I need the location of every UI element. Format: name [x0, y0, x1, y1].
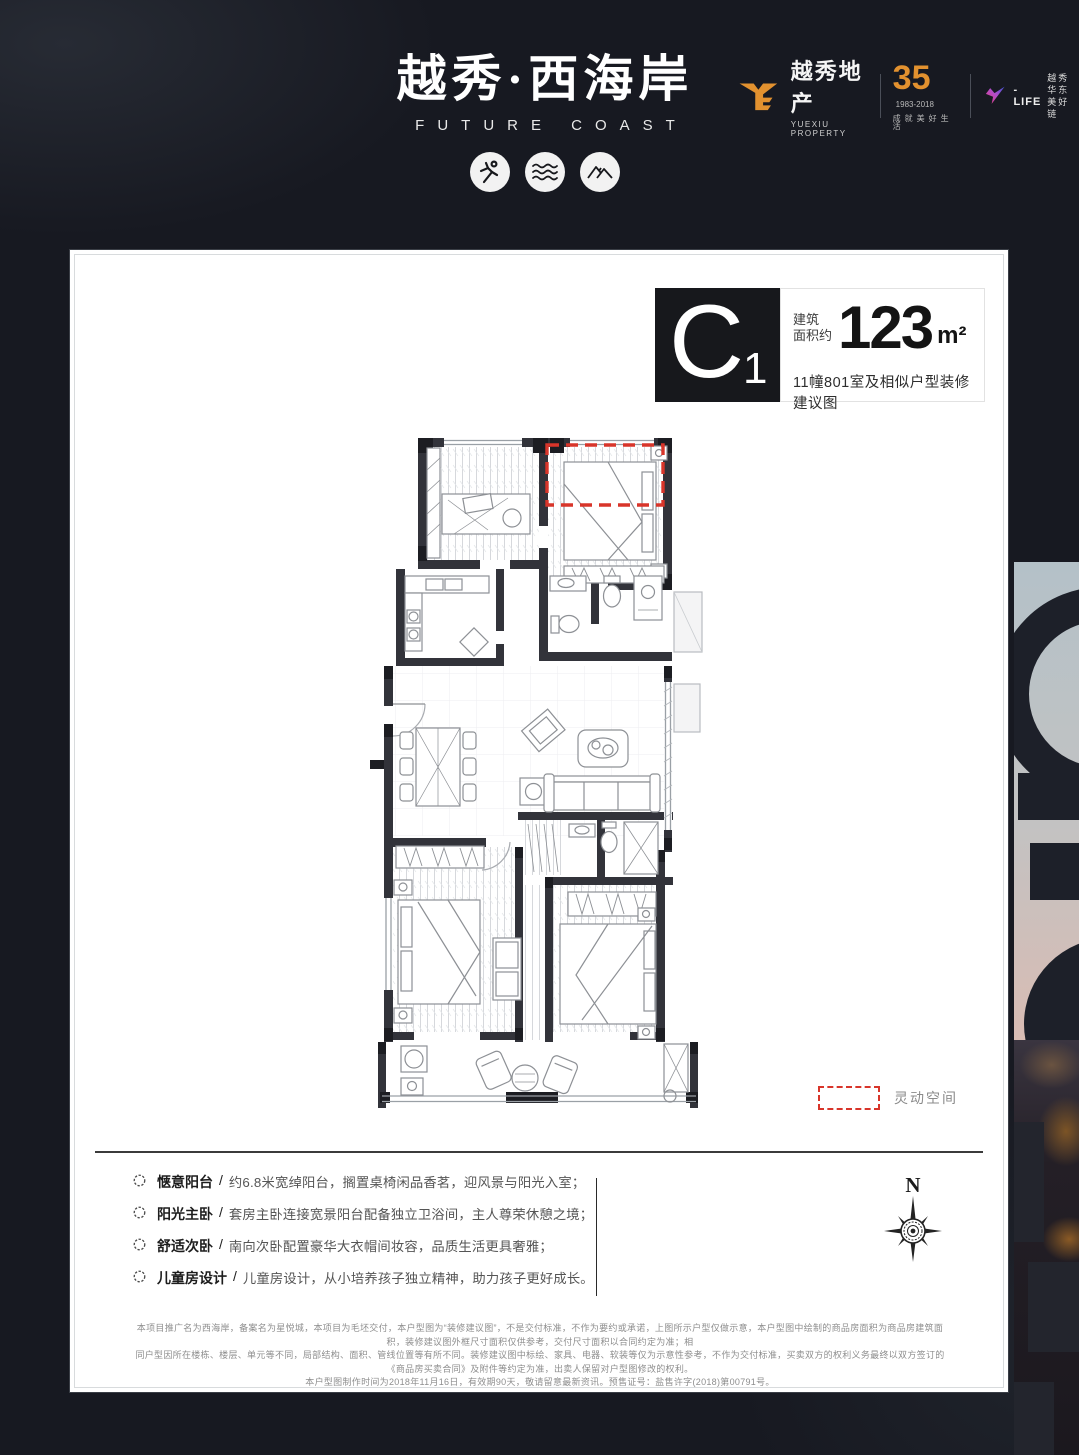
unit-subtitle: 11幢801室及相似户型装修建议图: [793, 371, 984, 413]
yuexiu-logo-icon: [738, 74, 779, 118]
feature-title: 惬意阳台: [157, 1172, 213, 1192]
corp-name-cn: 越秀地产: [791, 54, 868, 118]
section-divider: [95, 1151, 983, 1153]
unit-code-block: C 1: [655, 288, 780, 402]
feature-desc: 南向次卧配置豪华大衣帽间妆容，品质生活更具奢雅；: [229, 1236, 553, 1255]
area-label-line2: 面积约: [793, 328, 832, 344]
partner-text-line1: 越秀华东: [1047, 72, 1079, 96]
anniversary-years: 1983-2018: [896, 101, 934, 109]
side-photo-strip: [1014, 562, 1079, 1455]
feature-list: 惬意阳台 / 约6.8米宽绰阳台，搁置桌椅闲品香茗，迎风景与阳光入室； 阳光主卧…: [132, 1172, 592, 1300]
feature-desc: 套房主卧连接宽景阳台配备独立卫浴间，主人尊荣休憩之境；: [229, 1204, 593, 1223]
unit-area-value: 123: [838, 303, 932, 352]
anniversary-slogan: 成就美好生活: [893, 115, 959, 131]
anniversary-number: 35: [893, 61, 931, 95]
feature-compass-divider: [596, 1178, 597, 1296]
partner-bird-icon: [983, 79, 1008, 113]
city-overlay-block: [1028, 1262, 1079, 1352]
disclaimer-line: 本户型图制作时间为2018年11月16日，有效期90天，敬请留意最新资讯。预售证…: [132, 1376, 948, 1390]
unit-area-label: 建筑 面积约: [793, 312, 832, 344]
flower-bullet-icon: [132, 1205, 147, 1220]
flex-space-dash-icon: [818, 1086, 880, 1110]
feature-item: 阳光主卧 / 套房主卧连接宽景阳台配备独立卫浴间，主人尊荣休憩之境；: [132, 1204, 592, 1223]
partner-text: 越秀华东 美好链: [1047, 72, 1079, 120]
corp-name-en: YUEXIU PROPERTY: [791, 120, 868, 138]
feature-separator: /: [233, 1268, 237, 1284]
flex-space-label: 灵动空间: [894, 1088, 958, 1108]
flower-bullet-icon: [132, 1269, 147, 1284]
page: { "brand": { "logo_cn": "越秀·西海岸", "logo_…: [0, 0, 1079, 1455]
feature-separator: /: [219, 1236, 223, 1252]
floorplan-card: C 1 建筑 面积约 123 m² 11幢801室及相似户型装修建议图: [70, 250, 1008, 1392]
flex-space-legend: 灵动空间: [818, 1086, 958, 1110]
unit-code-number: 1: [743, 344, 767, 394]
divider: [880, 74, 881, 118]
compass-north-label: N: [905, 1173, 920, 1197]
anniversary-badge: 35 1983-2018 成就美好生活: [893, 61, 959, 131]
partner-name: -LIFE: [1013, 84, 1041, 108]
feature-desc: 约6.8米宽绰阳台，搁置桌椅闲品香茗，迎风景与阳光入室；: [229, 1172, 586, 1191]
floorplan-drawing: [368, 430, 713, 1120]
flower-bullet-icon: [132, 1173, 147, 1188]
mountains-icon: [580, 152, 620, 192]
waves-icon: [525, 152, 565, 192]
unit-code-letter: C: [669, 290, 744, 394]
divider: [970, 74, 971, 118]
city-overlay-block: [1014, 1122, 1044, 1242]
brand-header: 越秀·西海岸 FUTURE COAST: [370, 52, 720, 192]
brand-title-cn: 越秀·西海岸: [370, 52, 720, 107]
feature-separator: /: [219, 1172, 223, 1188]
feature-item: 惬意阳台 / 约6.8米宽绰阳台，搁置桌椅闲品香茗，迎风景与阳光入室；: [132, 1172, 592, 1191]
corp-logos: 越秀地产 YUEXIU PROPERTY 35 1983-2018 成就美好生活…: [738, 54, 1079, 138]
corp-name: 越秀地产 YUEXIU PROPERTY: [791, 54, 868, 138]
disclaimer-line: 本项目推广名为西海岸，备案名为星悦城，本项目为毛坯交付，本户型图为“装修建议图”…: [132, 1322, 948, 1349]
partner-logo: -LIFE 越秀华东 美好链: [983, 72, 1079, 120]
area-label-line1: 建筑: [793, 312, 832, 328]
city-overlay-block: [1014, 1382, 1054, 1455]
disclaimer: 本项目推广名为西海岸，备案名为星悦城，本项目为毛坯交付，本户型图为“装修建议图”…: [132, 1322, 948, 1390]
brand-title-en: FUTURE COAST: [370, 117, 720, 134]
feature-title: 儿童房设计: [157, 1268, 227, 1288]
feature-item: 舒适次卧 / 南向次卧配置豪华大衣帽间妆容，品质生活更具奢雅；: [132, 1236, 592, 1255]
feature-desc: 儿童房设计，从小培养孩子独立精神，助力孩子更好成长。: [243, 1268, 594, 1287]
side-photo-typography: [1014, 562, 1079, 1040]
partner-text-line2: 美好链: [1047, 96, 1079, 120]
feature-title: 阳光主卧: [157, 1204, 213, 1224]
feature-separator: /: [219, 1204, 223, 1220]
disclaimer-line: 同户型因所在楼栋、楼层、单元等不同，局部结构、面积、管线位置等有所不同。装修建议…: [132, 1349, 948, 1376]
brand-icon-row: [370, 152, 720, 192]
compass: N: [878, 1172, 948, 1264]
unit-area-unit: m²: [937, 322, 966, 350]
unit-area-row: 建筑 面积约 123 m²: [793, 303, 966, 352]
feature-item: 儿童房设计 / 儿童房设计，从小培养孩子独立精神，助力孩子更好成长。: [132, 1268, 592, 1287]
flower-bullet-icon: [132, 1237, 147, 1252]
unit-info-block: 建筑 面积约 123 m² 11幢801室及相似户型装修建议图: [780, 288, 985, 402]
feature-title: 舒适次卧: [157, 1236, 213, 1256]
runner-icon: [470, 152, 510, 192]
